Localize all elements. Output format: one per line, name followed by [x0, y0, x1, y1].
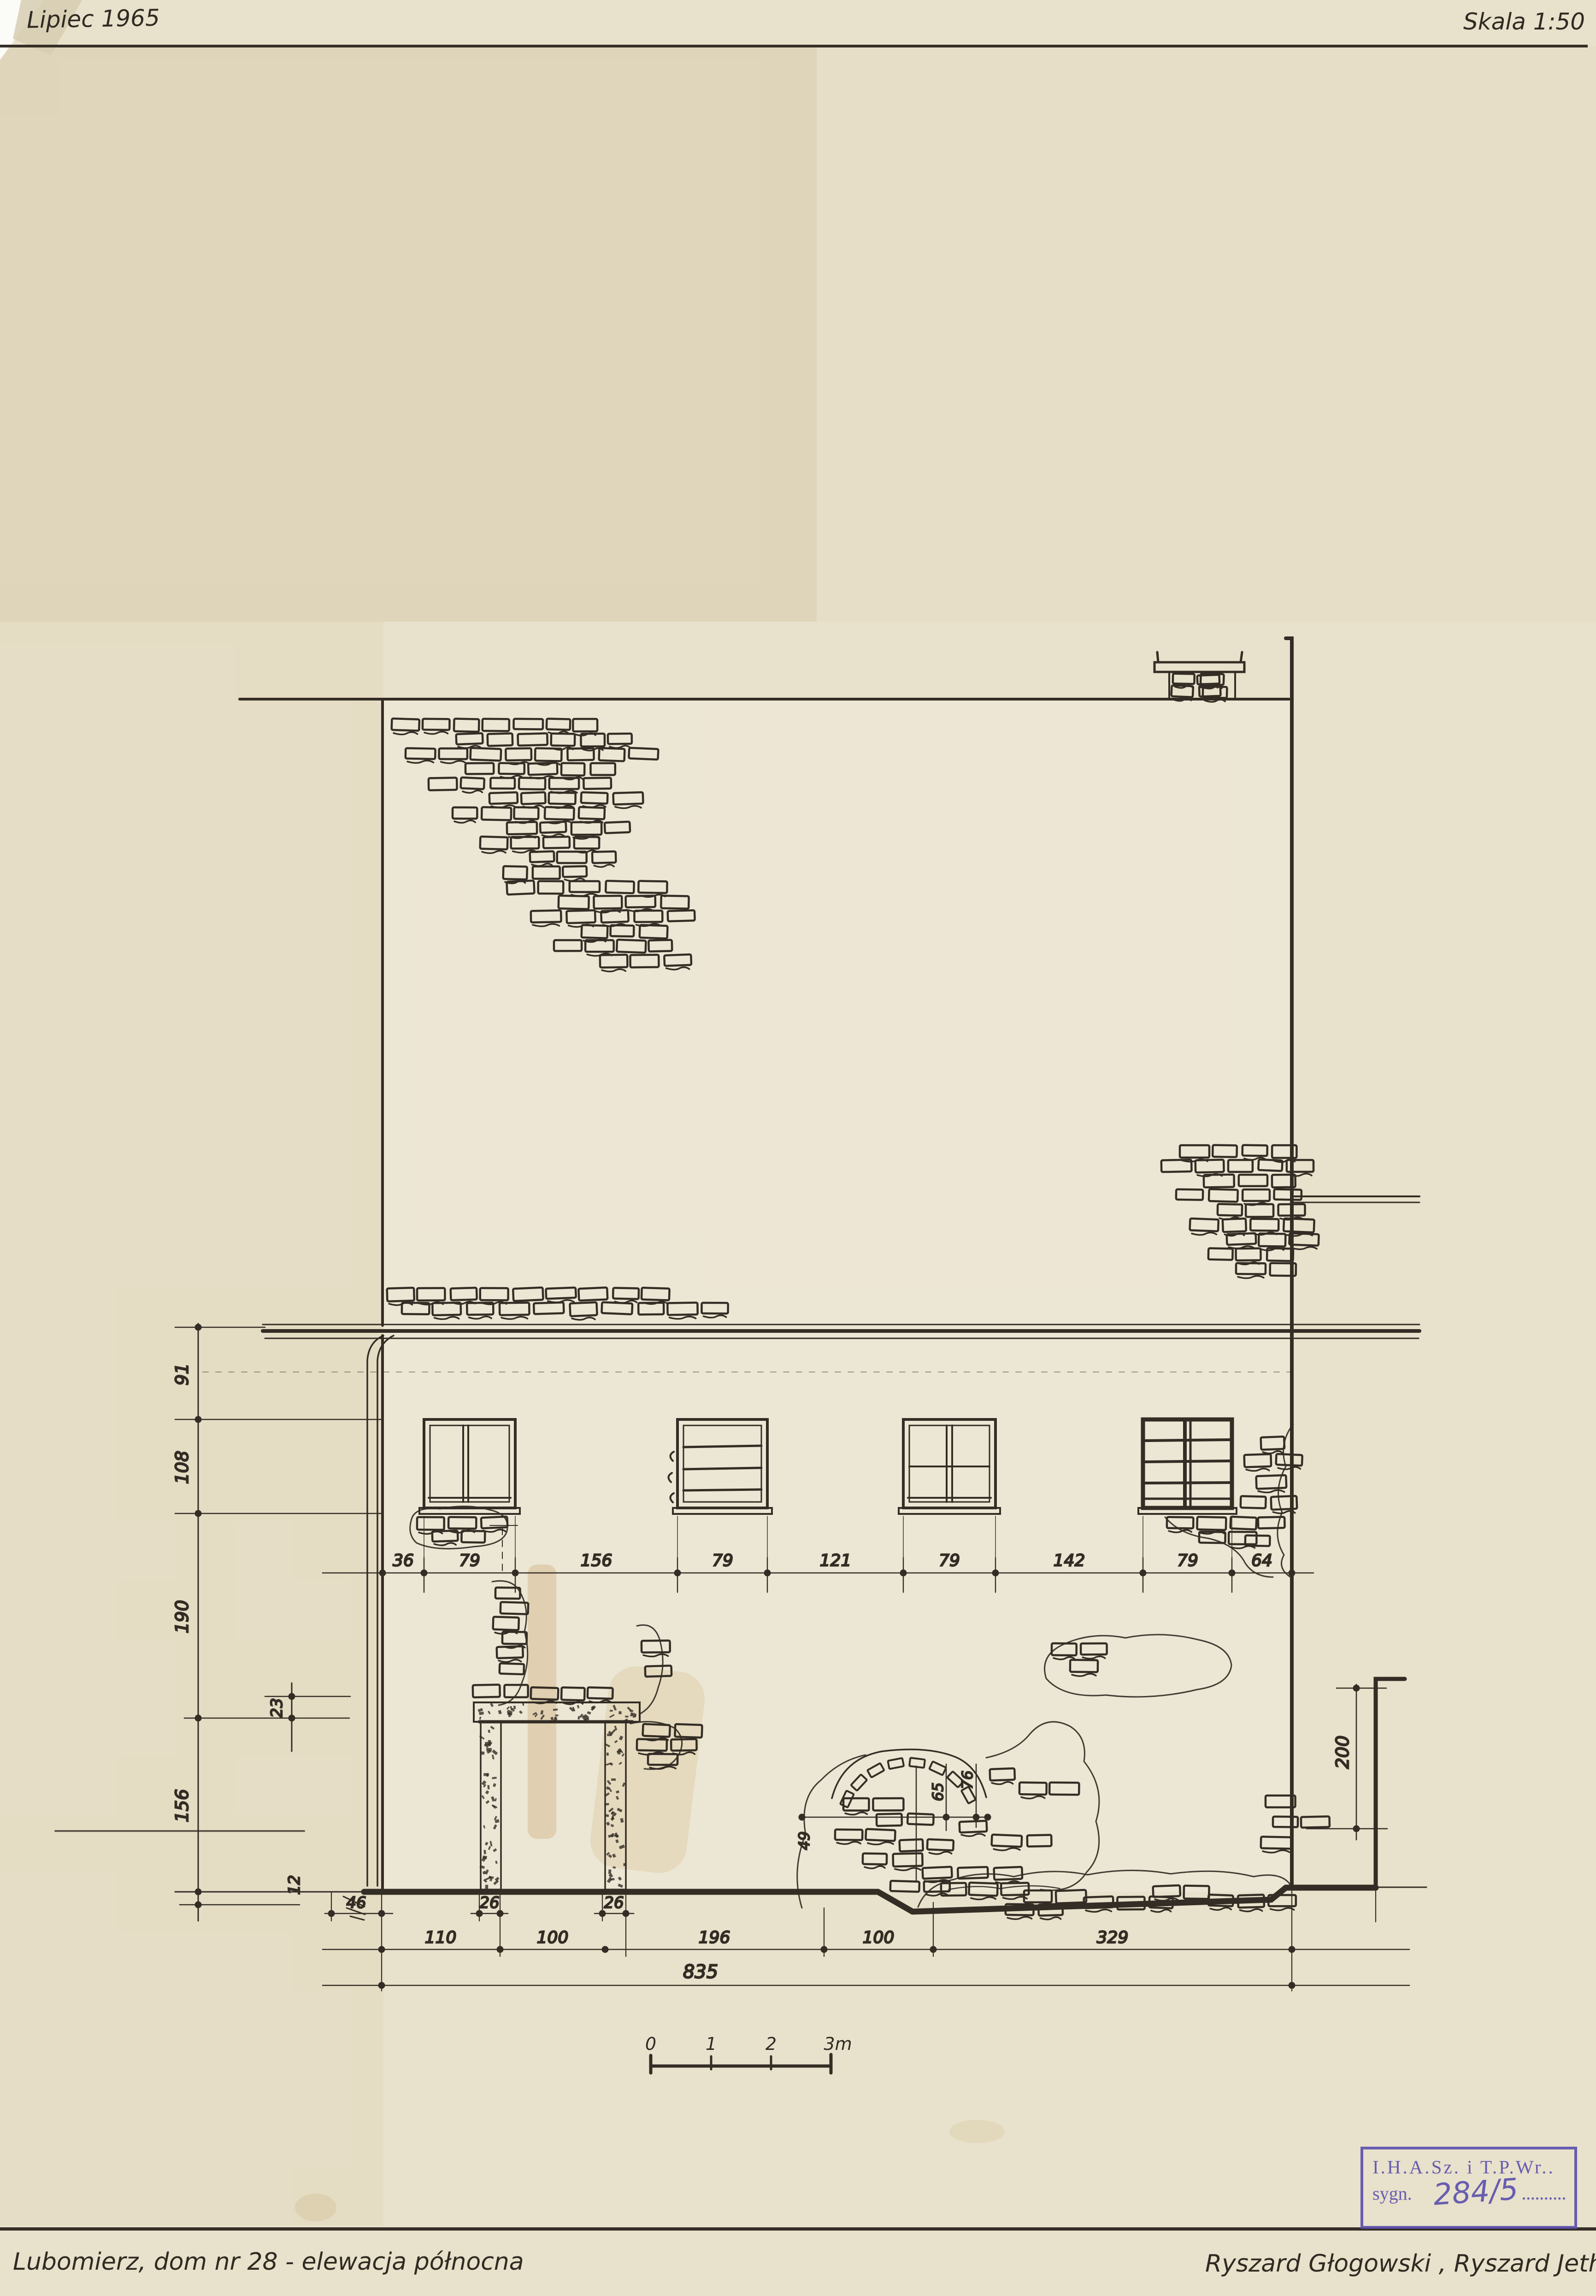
scalebar-0: 0	[645, 2034, 656, 2054]
ruined-niche	[832, 1749, 986, 1881]
window-2-hooks	[668, 1452, 674, 1502]
dim-49: 49	[795, 1831, 813, 1850]
chimney	[1154, 652, 1244, 702]
scale-bar: 0 1 2 3m	[645, 2034, 852, 2073]
dim-121: 121	[820, 1551, 852, 1570]
scalebar-3m: 3m	[824, 2034, 852, 2054]
dim-label-23: 23	[268, 1698, 286, 1718]
door-portal	[474, 1702, 640, 1890]
downpipe	[343, 1336, 394, 1920]
eaves-line	[263, 1325, 1419, 1338]
dim-156: 156	[581, 1551, 612, 1570]
scanned-architectural-drawing: { "header": { "date": "Lipiec 1965", "sc…	[0, 0, 1596, 2296]
dim-65: 65	[929, 1783, 947, 1801]
side-roof-line	[1292, 1196, 1419, 1202]
damage-outlines	[410, 1424, 1293, 1908]
dim-100a: 100	[537, 1928, 569, 1947]
dim-79a: 79	[459, 1551, 480, 1570]
dim-110: 110	[425, 1928, 457, 1947]
chimney-stone-texture	[1172, 673, 1227, 702]
dim-36: 36	[393, 1551, 414, 1570]
dim-46: 46	[346, 1894, 366, 1912]
dim-label-156: 156	[172, 1789, 192, 1823]
window-3-sill	[899, 1508, 1000, 1514]
window-3	[899, 1419, 1000, 1514]
window-4	[1138, 1419, 1237, 1514]
dim-79c: 79	[939, 1551, 960, 1570]
elevation-drawing: 91 108 190 156 12 23 36 79 156 79 121 79…	[0, 0, 1596, 2296]
left-dimension-chain: 91 108 190 156 12 23	[55, 1324, 383, 1921]
dim-26b: 26	[604, 1894, 624, 1912]
scalebar-2: 2	[766, 2034, 777, 2054]
dim-label-190: 190	[172, 1600, 192, 1634]
niche-arch-bricks	[840, 1758, 976, 1807]
retaining-wall	[1376, 1679, 1426, 1888]
dim-196: 196	[699, 1928, 730, 1947]
dim-64: 64	[1251, 1551, 1272, 1570]
dim-200: 200	[1332, 1736, 1353, 1769]
dim-label-91: 91	[172, 1363, 192, 1385]
window-2-sill	[673, 1508, 772, 1514]
dim-26a: 26	[479, 1894, 499, 1912]
left-chain-ticks	[195, 1324, 295, 1908]
dim-142: 142	[1054, 1551, 1085, 1570]
dim-79b: 79	[712, 1551, 733, 1570]
window-4-sill	[1138, 1508, 1237, 1514]
portal-right-jamb	[605, 1722, 626, 1890]
scalebar-1: 1	[706, 2034, 717, 2054]
window-1	[419, 1419, 520, 1514]
dim-label-12: 12	[285, 1875, 304, 1895]
dim-835: 835	[683, 1961, 718, 1983]
dim-100b: 100	[863, 1928, 895, 1947]
portal-left-jamb	[481, 1722, 501, 1890]
dim-label-108: 108	[172, 1451, 192, 1484]
window-2	[668, 1419, 772, 1514]
dim-76: 76	[959, 1771, 976, 1790]
bottom-dimension-rows: 46 26 26 110 100 196 100 329 835	[323, 1888, 1409, 1991]
dim-329: 329	[1097, 1928, 1129, 1947]
brick-shingle-textures	[387, 718, 1330, 1919]
dim-79d: 79	[1177, 1551, 1198, 1570]
